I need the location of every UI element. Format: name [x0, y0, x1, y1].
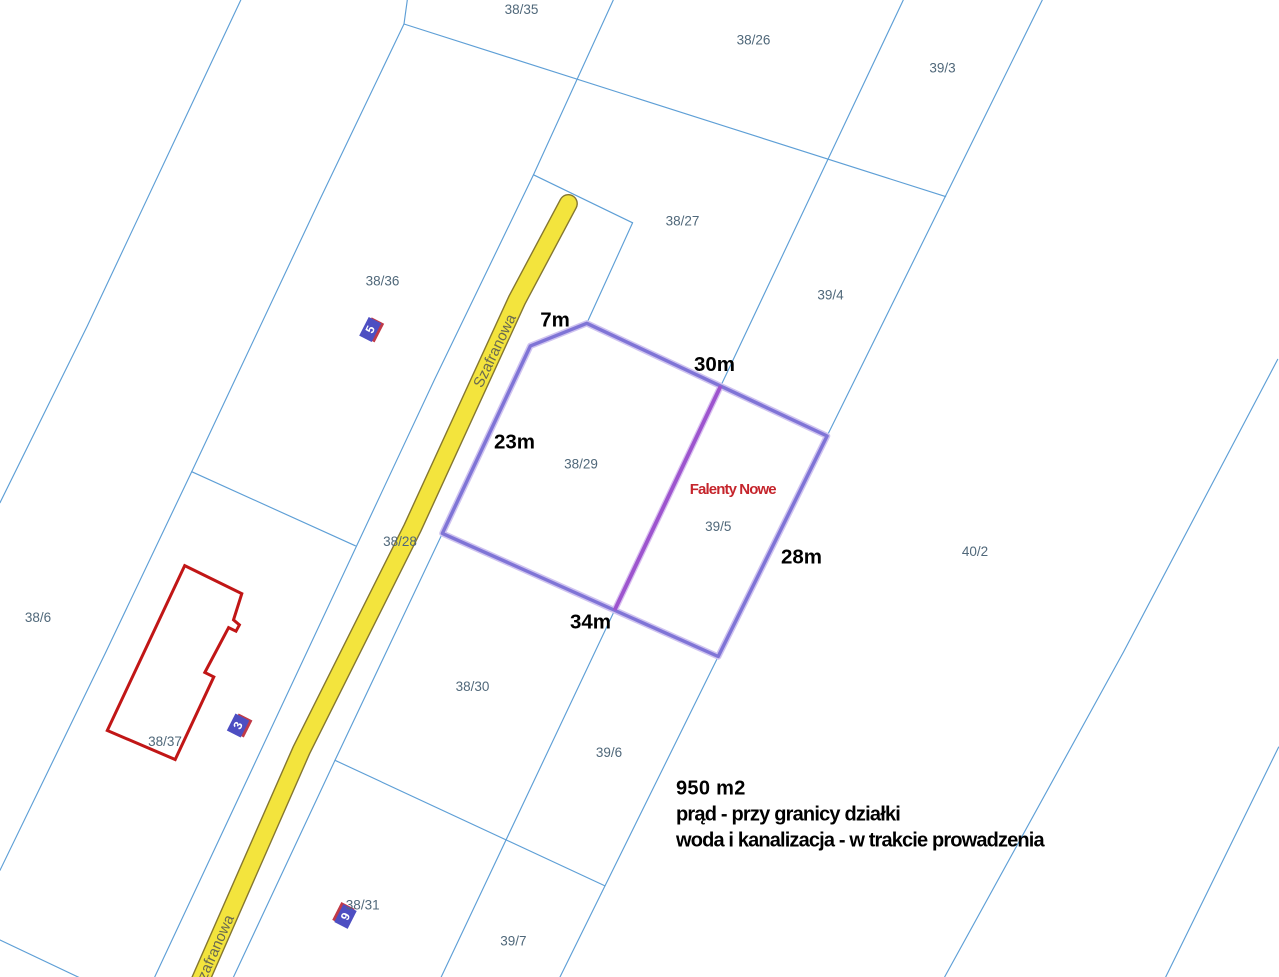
svg-text:34m: 34m	[570, 611, 611, 634]
svg-text:28m: 28m	[781, 546, 822, 569]
svg-text:38/36: 38/36	[366, 274, 400, 289]
svg-text:950 m2: 950 m2	[676, 777, 746, 799]
svg-text:prąd - przy granicy działki: prąd - przy granicy działki	[676, 804, 900, 826]
svg-text:38/28: 38/28	[383, 534, 417, 549]
svg-text:30m: 30m	[694, 353, 735, 376]
svg-text:40/2: 40/2	[962, 544, 988, 559]
svg-text:38/30: 38/30	[456, 679, 490, 694]
svg-text:38/35: 38/35	[505, 2, 539, 17]
svg-text:Falenty Nowe: Falenty Nowe	[690, 481, 776, 498]
svg-text:39/7: 39/7	[500, 933, 526, 948]
svg-text:39/4: 39/4	[817, 288, 844, 303]
svg-text:38/27: 38/27	[666, 214, 700, 229]
svg-text:38/37: 38/37	[148, 734, 182, 749]
svg-text:38/26: 38/26	[737, 33, 771, 48]
svg-text:38/31: 38/31	[346, 898, 380, 913]
svg-text:39/3: 39/3	[929, 61, 955, 76]
svg-text:39/6: 39/6	[596, 745, 622, 760]
svg-text:39/5: 39/5	[705, 519, 731, 534]
svg-text:woda i kanalizacja - w trakcie: woda i kanalizacja - w trakcie prowadzen…	[675, 830, 1046, 852]
svg-text:23m: 23m	[494, 431, 535, 454]
svg-text:7m: 7m	[540, 309, 570, 332]
svg-text:38/29: 38/29	[564, 457, 598, 472]
svg-text:38/6: 38/6	[25, 610, 51, 625]
